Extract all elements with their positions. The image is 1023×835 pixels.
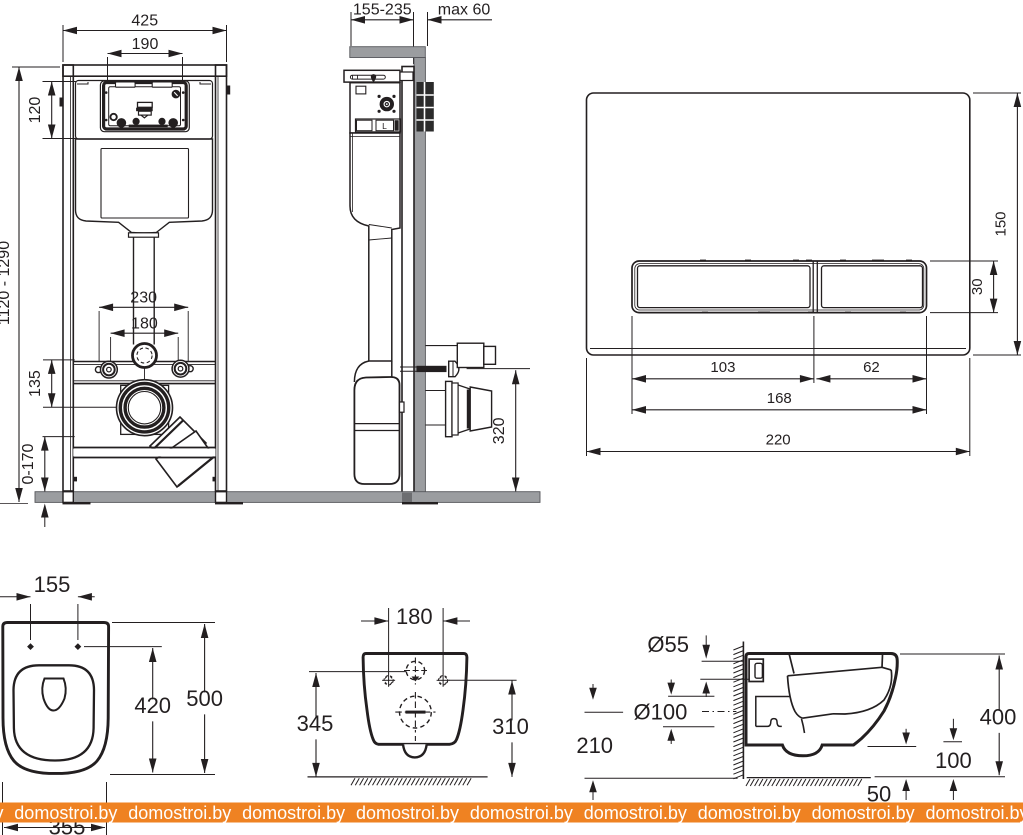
svg-text:150: 150 (993, 211, 1010, 236)
svg-text:domostroi.by: domostroi.by (14, 803, 117, 823)
svg-text:103: 103 (710, 359, 735, 376)
svg-text:120: 120 (27, 97, 44, 124)
svg-text:domostroi.by: domostroi.by (128, 803, 231, 823)
svg-text:domostroi.by: domostroi.by (0, 803, 3, 823)
svg-text:190: 190 (132, 36, 159, 53)
svg-text:Ø100: Ø100 (633, 700, 687, 725)
svg-text:Ø55: Ø55 (647, 632, 689, 657)
svg-text:310: 310 (492, 714, 529, 739)
svg-text:155: 155 (34, 572, 71, 597)
svg-text:domostroi.by: domostroi.by (698, 803, 801, 823)
svg-text:230: 230 (130, 290, 157, 307)
svg-text:210: 210 (576, 733, 613, 758)
svg-text:135: 135 (27, 370, 44, 397)
svg-text:180: 180 (131, 316, 158, 333)
svg-text:400: 400 (980, 705, 1017, 730)
svg-text:62: 62 (863, 359, 880, 376)
svg-text:220: 220 (766, 432, 791, 449)
svg-text:domostroi.by: domostroi.by (812, 803, 915, 823)
svg-text:420: 420 (134, 693, 171, 718)
svg-text:1120 - 1290: 1120 - 1290 (0, 241, 13, 325)
svg-text:domostroi.by: domostroi.by (470, 803, 573, 823)
svg-text:100: 100 (935, 748, 972, 773)
svg-text:L: L (382, 121, 387, 131)
svg-text:345: 345 (297, 711, 334, 736)
svg-text:155-235: 155-235 (353, 2, 412, 19)
svg-text:domostroi.by: domostroi.by (584, 803, 687, 823)
svg-text:0-170: 0-170 (20, 443, 37, 484)
svg-text:180: 180 (396, 604, 433, 629)
svg-text:domostroi.by: domostroi.by (926, 803, 1023, 823)
svg-text:max 60: max 60 (438, 2, 491, 19)
svg-text:30: 30 (969, 278, 986, 295)
svg-text:domostroi.by: domostroi.by (356, 803, 459, 823)
svg-text:500: 500 (186, 686, 223, 711)
svg-text:168: 168 (767, 390, 792, 407)
svg-text:domostroi.by: domostroi.by (242, 803, 345, 823)
svg-text:320: 320 (491, 417, 508, 444)
svg-text:425: 425 (131, 13, 158, 30)
